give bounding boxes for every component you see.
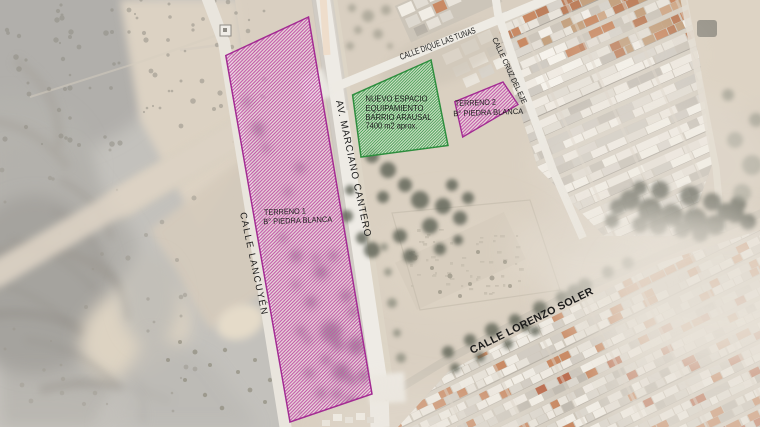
svg-text:7400 m2 aprox.: 7400 m2 aprox. (366, 122, 418, 131)
svg-text:TERRENO 2: TERRENO 2 (455, 98, 496, 108)
svg-text:NUEVO ESPACIO: NUEVO ESPACIO (366, 95, 428, 104)
svg-text:EQUIPAMIENTO: EQUIPAMIENTO (366, 104, 424, 113)
